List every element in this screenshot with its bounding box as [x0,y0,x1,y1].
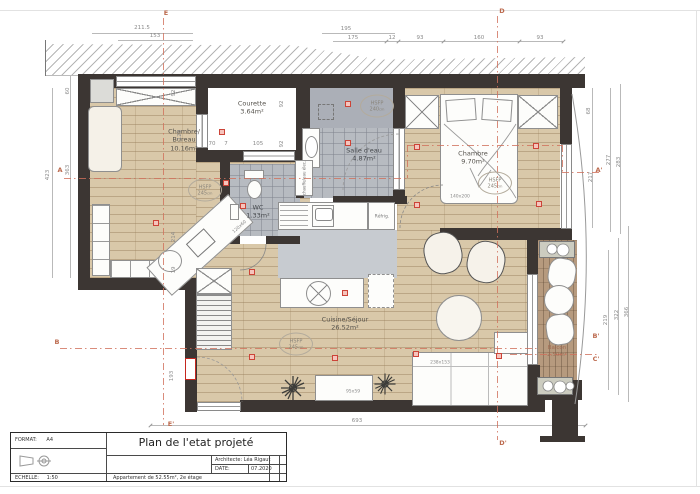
dimension-label: 7 [224,141,228,147]
vanity-basin [305,136,318,158]
kitchen-side-unit [368,274,394,308]
outlet-symbol [332,355,338,361]
section-line-d [497,16,498,440]
window-balcony-door [527,274,538,365]
dimension-label: 19 [171,267,177,274]
section-marker: B' [593,332,600,340]
dim-line [92,33,193,34]
shelf-column [92,204,110,276]
planter [539,241,575,258]
wardrobe-left [405,95,439,129]
page-edge-top [0,10,700,11]
dimension-label: 175 [348,35,359,41]
room-name: Cuisine/Séjour [322,316,369,324]
kitchen-drawers [280,205,308,227]
storage-box [90,79,114,103]
wc-basin [230,204,239,220]
dimension-label: 366 [624,307,630,318]
room-label-cuisine-sejour: Cuisine/Séjour 26.52m² [322,316,369,333]
pouf [436,295,482,341]
dimension-label: 68 [586,108,592,115]
ceiling-height-label: HSFP245cm [478,172,512,195]
dimension-label: 105 [253,141,264,147]
dim-line [333,41,563,42]
laptop [186,228,216,257]
dim-line [70,76,71,278]
room-name: Chambre [458,150,488,158]
sofa-size-label: 238x153 [430,361,450,366]
outlet-symbol [496,353,502,359]
ceiling-height-label: HSFP240cm [360,95,394,118]
outlet-symbol [345,140,351,146]
dimension-label: 219 [603,315,609,326]
wall-segment [527,228,538,275]
section-line-a [562,172,600,173]
entry-door-highlight [185,358,196,380]
room-label-wc: WC 1.33m² [246,204,269,221]
fridge-label: Réfrig. [375,215,390,220]
dim-line [150,425,585,426]
section-marker: D' [499,439,506,447]
ceiling-height-label: HSFP245cm [188,179,222,202]
dimension-label: 92 [171,90,177,97]
outlet-symbol [536,201,542,207]
section-marker: E [164,9,168,17]
format-cell: FORMAT: A4 [15,437,53,443]
dimension-label: 214 [171,232,177,243]
coffee-table-size-label: 95x59 [346,390,360,395]
section-marker: D [499,7,504,15]
dimension-label: 12 [389,35,396,41]
dim-line [52,88,53,278]
scale-label: ECHELLE: [15,475,39,481]
section-marker: C' [593,355,600,363]
room-area: 4.87m² [346,155,382,163]
format-label: FORMAT: [15,437,37,443]
dimension-label: 211.5 [134,25,150,31]
dimension-label: 193 [169,371,175,382]
room-label-balcon: Balcon 2.50m² [547,345,567,359]
entry-closet-lower [196,294,232,350]
dimension-label: 120 [177,130,183,141]
dimension-label: 60 [65,88,71,95]
room-label-chambre-bureau: Chambre/ Bureau 10.16m² [168,127,200,152]
wall-balcony-leg [552,400,578,437]
dimension-label: 70 [209,141,216,147]
architect-cell: Architecte: Léa Rigaut [215,457,270,463]
room-name: Courette [238,100,266,108]
floor-plan-sheet: 120x60 chauffe/eau élec. Réfrig. 140x200… [0,0,700,494]
coffee-table [315,375,373,401]
dimension-label: 153 [150,33,161,39]
ceiling-height-label: HSFP245cm [279,333,313,356]
drawing-subtitle: Appartement de 52.55m², 2e étage [113,475,202,481]
window-bureau [116,76,196,87]
dimension-label: 92 [279,101,285,108]
scale-cell: ECHELLE: 1:50 [15,475,58,481]
entry-closet-upper [196,268,232,294]
wardrobe-bureau [116,88,196,106]
wall-segment [393,88,405,128]
date-value: 07.2020 [251,466,272,472]
desk-chair [158,250,182,272]
bed-size-label: 140x200 [450,195,470,200]
dim-line [322,33,395,34]
room-area: 26.52m² [322,324,369,332]
party-wall-edge [45,40,46,76]
outlet-symbol [413,351,419,357]
room-area: 2.50m² [547,352,567,359]
dimension-label: 93 [537,35,544,41]
dimension-label: 283 [616,157,622,168]
dim-line [592,88,593,228]
shower-drain [318,104,334,120]
dimension-label: 322 [614,310,620,321]
wall-balcony-foot [540,436,585,442]
title-block: FORMAT: A4 Plan de l'etat projeté Archit… [10,432,287,482]
outlet-symbol [249,269,255,275]
room-name: Chambre/ [168,127,200,135]
room-area: 9.70m² [458,158,488,166]
section-line-a-jog [407,145,408,178]
date-label: DATE: [215,466,230,472]
section-marker: E' [168,420,174,428]
window-living-south [197,402,241,411]
planter [537,377,573,395]
room-label-chambre: Chambre 9.70m² [458,150,488,167]
page-edge-bottom [0,486,700,487]
sink-bowl [315,208,333,221]
door-salle-eau [393,128,405,190]
cooktop [306,281,331,306]
section-line-a-jog [562,145,563,172]
window-courette-bottom [243,151,295,161]
outlet-symbol [249,354,255,360]
wall-segment [560,74,572,144]
outlet-symbol [414,202,420,208]
format-value: A4 [46,437,53,443]
outlet-symbol [219,129,225,135]
drawing-title: Plan de l'etat projeté [106,436,286,449]
section-line-e [163,18,164,425]
section-line-a [64,178,407,179]
sofa-chaise [494,332,528,354]
outlet-symbol [345,101,351,107]
outlet-symbol [240,203,246,209]
outlet-symbol [223,180,229,186]
section-marker: A [57,166,62,174]
dimension-label: 93 [417,35,424,41]
page-edge-right [696,10,697,487]
dimension-label: 195 [341,26,352,32]
dimension-label: 277 [606,155,612,166]
dimension-label: 423 [45,170,51,181]
door-wc-opening [240,236,266,244]
room-name: Salle d'eau [346,147,382,155]
outlet-symbol [533,143,539,149]
balcony-table [544,285,574,315]
room-name: WC [246,204,269,212]
toilet-bowl [247,180,262,199]
architect-value: Léa Rigaut [244,457,271,463]
fridge: Réfrig. [368,202,395,230]
scale-value: 1:50 [47,475,58,481]
dim-line [118,40,193,41]
room-name: Bureau [168,136,200,144]
section-marker: B [55,338,60,346]
dimension-label: 693 [352,418,363,424]
section-marker: A' [595,166,602,174]
pillow [445,98,476,122]
dimension-label: 160 [474,35,485,41]
outlet-symbol [342,290,348,296]
dimension-label: 92 [279,141,285,148]
outlet-symbol [153,220,159,226]
wall-segment [440,228,572,240]
outlet-symbol [414,144,420,150]
wardrobe-right [518,95,558,129]
exterior-wall-hatch [45,42,585,76]
room-area: 3.64m² [238,108,266,116]
dimension-label: 363 [65,165,71,176]
room-area: 1.33m² [246,212,269,220]
wall-segment [78,74,90,290]
projection-symbol-icon [17,453,57,469]
daybed [88,106,122,172]
room-area: 10.16m² [168,144,200,152]
room-label-salle-eau: Salle d'eau 4.87m² [346,147,382,164]
room-label-courette: Courette 3.64m² [238,100,266,117]
dimension-label: 217 [588,172,594,183]
architect-label: Architecte: [215,457,242,463]
